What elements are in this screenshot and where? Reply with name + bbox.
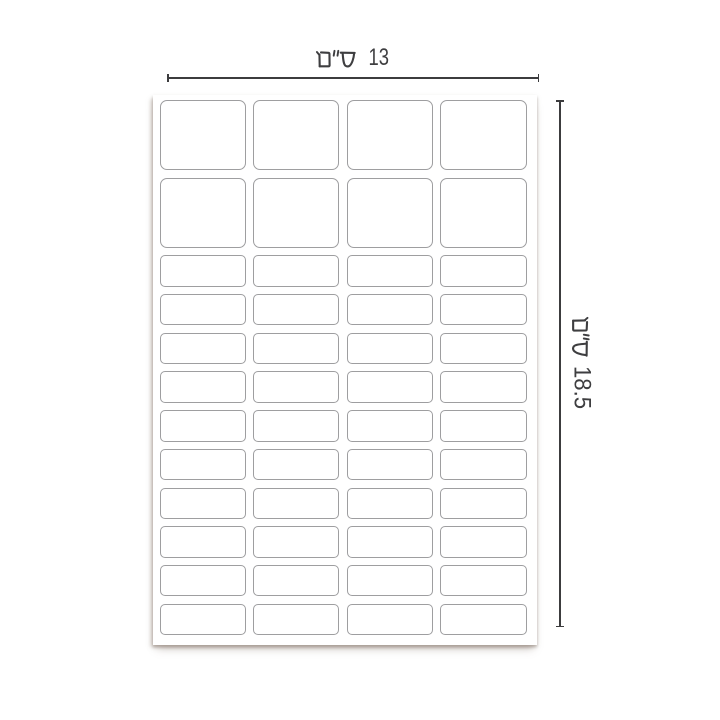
svg-text:13: 13 bbox=[369, 44, 390, 71]
svg-text:18.5: 18.5 bbox=[569, 366, 596, 409]
